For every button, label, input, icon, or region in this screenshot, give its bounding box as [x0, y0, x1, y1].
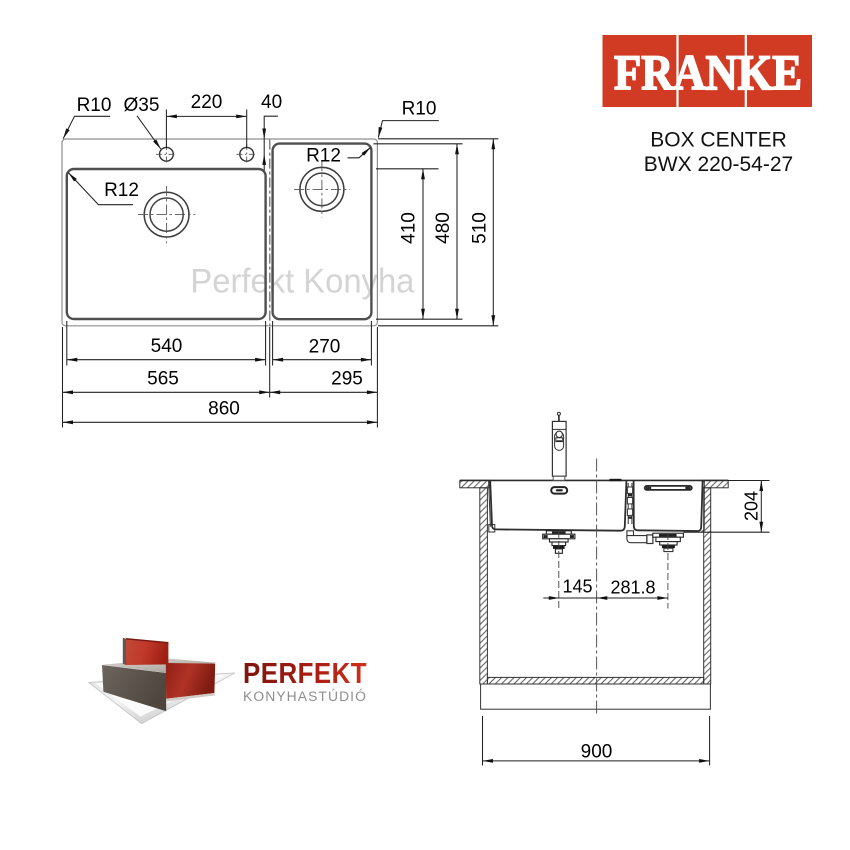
svg-text:Ø35: Ø35 [124, 95, 160, 116]
svg-text:410: 410 [399, 212, 420, 244]
svg-text:BWX 220-54-27: BWX 220-54-27 [644, 153, 793, 176]
svg-text:R12: R12 [104, 180, 139, 201]
svg-text:295: 295 [331, 369, 363, 390]
svg-text:R10: R10 [77, 95, 112, 116]
svg-text:204: 204 [742, 491, 762, 521]
svg-text:KONYHASTÚDIÓ: KONYHASTÚDIÓ [243, 688, 367, 705]
svg-text:R10: R10 [402, 98, 437, 119]
svg-text:281.8: 281.8 [610, 577, 655, 597]
svg-text:PERFEKT: PERFEKT [243, 658, 367, 690]
svg-text:BOX CENTER: BOX CENTER [650, 129, 787, 152]
svg-text:FRANKE: FRANKE [614, 44, 802, 100]
svg-text:510: 510 [470, 212, 491, 244]
svg-text:540: 540 [151, 336, 183, 357]
svg-text:40: 40 [261, 92, 282, 113]
svg-text:R12: R12 [306, 146, 341, 167]
svg-text:220: 220 [191, 92, 223, 113]
svg-text:860: 860 [208, 399, 240, 420]
svg-text:480: 480 [433, 212, 454, 244]
svg-text:900: 900 [581, 741, 613, 762]
svg-text:270: 270 [309, 337, 341, 358]
svg-text:145: 145 [562, 576, 592, 596]
svg-text:Perfekt Konyha: Perfekt Konyha [190, 263, 414, 301]
svg-text:565: 565 [147, 369, 179, 390]
